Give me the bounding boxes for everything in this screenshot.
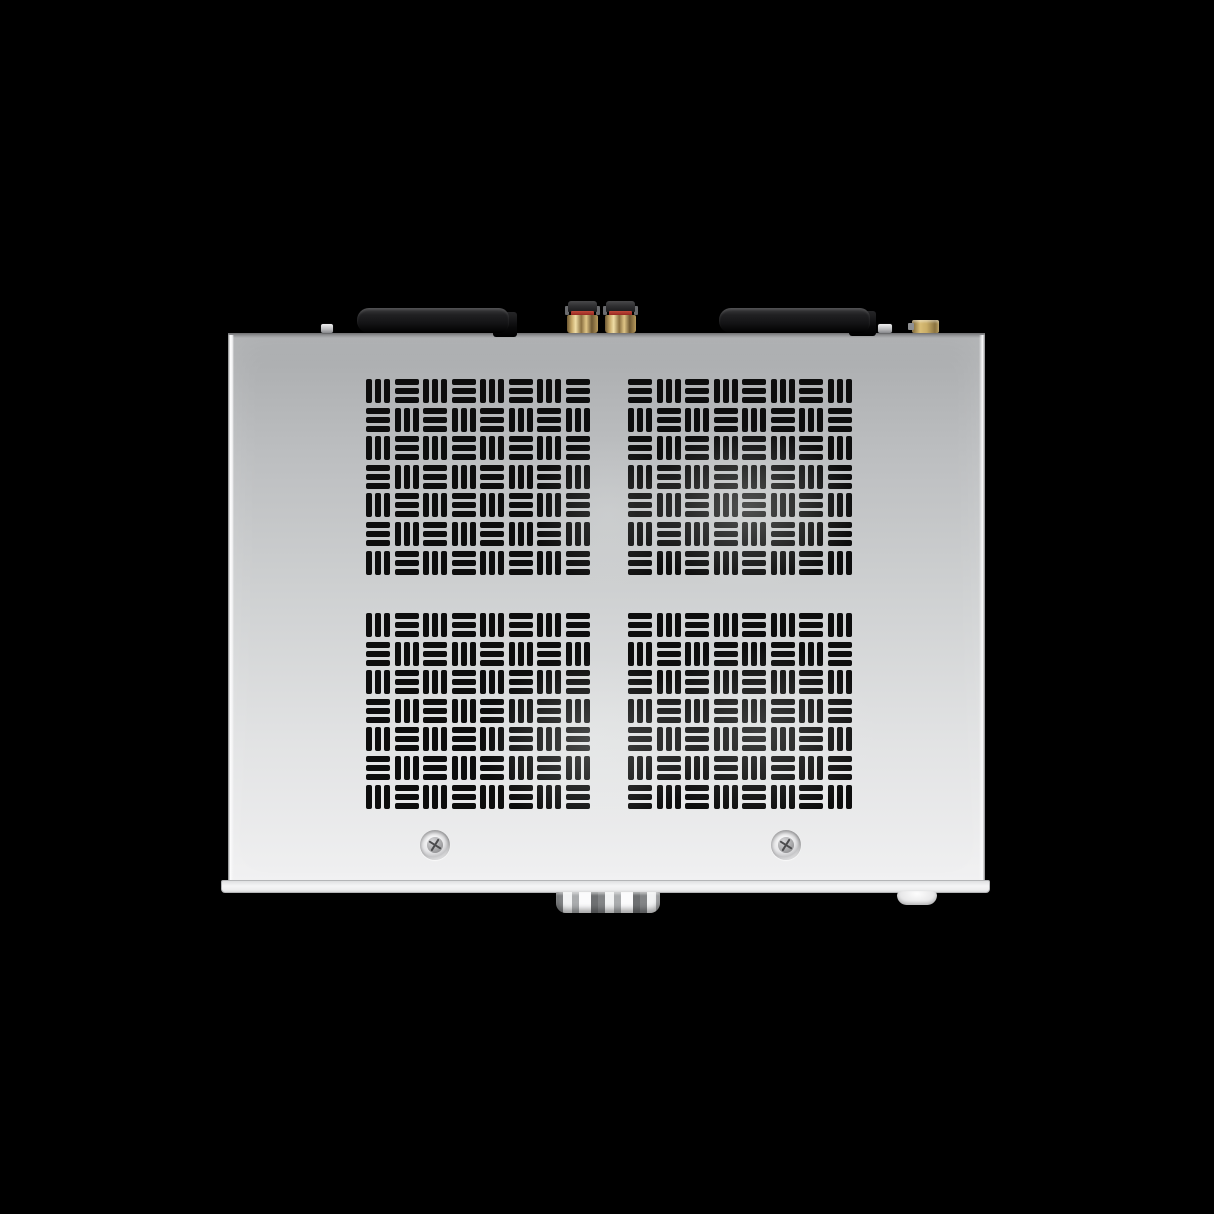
vent-slot	[452, 699, 458, 723]
vent-slot	[452, 569, 476, 575]
vent-cell	[423, 756, 447, 780]
vent-slot	[657, 642, 681, 648]
vent-cell	[742, 551, 766, 575]
vent-slot	[628, 736, 652, 742]
vent-cell	[742, 493, 766, 517]
vent-slot	[566, 454, 590, 460]
vent-slot	[714, 551, 720, 575]
vent-slot	[395, 454, 419, 460]
vent-cell	[828, 379, 852, 403]
vent-slot	[714, 540, 738, 546]
vent-slot	[628, 522, 634, 546]
vent-slot	[470, 522, 476, 546]
vent-cell	[628, 785, 652, 809]
vent-slot	[771, 756, 795, 762]
vent-slot	[423, 785, 429, 809]
vent-slot	[799, 736, 823, 742]
vent-cell	[566, 613, 590, 637]
vent-slot	[828, 670, 834, 694]
vent-slot	[685, 622, 709, 628]
vent-slot	[480, 483, 504, 489]
vent-slot	[780, 613, 786, 637]
vent-cell	[742, 613, 766, 637]
vent-slot	[413, 756, 419, 780]
vent-slot	[537, 436, 543, 460]
vent-slot	[423, 408, 447, 414]
vent-slot	[366, 774, 390, 780]
vent-cell	[423, 493, 447, 517]
vent-slot	[404, 408, 410, 432]
vent-slot	[714, 493, 720, 517]
amplifier-chassis-top	[228, 333, 985, 881]
vent-slot	[452, 436, 476, 442]
vent-slot	[666, 379, 672, 403]
vent-slot	[470, 408, 476, 432]
vent-slot	[789, 551, 795, 575]
vent-cell	[714, 379, 738, 403]
vent-slot	[366, 465, 390, 471]
vent-slot	[489, 436, 495, 460]
vent-slot	[723, 493, 729, 517]
vent-slot	[714, 474, 738, 480]
vent-slot	[498, 493, 504, 517]
vent-slot	[566, 465, 572, 489]
vent-slot	[828, 756, 852, 762]
vent-cell	[537, 379, 561, 403]
vent-slot	[470, 756, 476, 780]
vent-slot	[366, 660, 390, 666]
vent-slot	[675, 436, 681, 460]
vent-slot	[518, 756, 524, 780]
vent-slot	[780, 379, 786, 403]
vent-slot	[657, 483, 681, 489]
vent-slot	[555, 670, 561, 694]
vent-cell	[657, 408, 681, 432]
vent-slot	[828, 660, 852, 666]
vent-slot	[685, 670, 709, 676]
vent-slot	[675, 727, 681, 751]
vent-cell	[685, 465, 709, 489]
vent-cell	[685, 379, 709, 403]
vent-cell	[395, 551, 419, 575]
vent-slot	[480, 727, 486, 751]
vent-slot	[751, 465, 757, 489]
vent-slot	[789, 436, 795, 460]
vent-slot	[657, 551, 663, 575]
vent-cell	[509, 493, 533, 517]
vent-slot	[566, 794, 590, 800]
vent-slot	[375, 551, 381, 575]
vent-slot	[789, 379, 795, 403]
vent-slot	[432, 613, 438, 637]
vent-slot	[452, 622, 476, 628]
vent-slot	[742, 803, 766, 809]
vent-cell	[537, 436, 561, 460]
vent-cell	[685, 727, 709, 751]
vent-slot	[685, 745, 709, 751]
vent-slot	[537, 483, 561, 489]
vent-cell	[714, 522, 738, 546]
vent-slot	[480, 474, 504, 480]
vent-slot	[628, 511, 652, 517]
vent-slot	[509, 756, 515, 780]
vent-cell	[366, 785, 390, 809]
vent-slot	[395, 699, 401, 723]
vent-cell	[828, 522, 852, 546]
vent-slot	[799, 688, 823, 694]
vent-grille-top-right	[628, 379, 852, 575]
vent-slot	[657, 417, 681, 423]
vent-slot	[742, 397, 766, 403]
vent-cell	[799, 465, 823, 489]
vent-slot	[546, 670, 552, 694]
vent-slot	[628, 397, 652, 403]
vent-slot	[384, 785, 390, 809]
vent-slot	[489, 613, 495, 637]
vent-slot	[423, 540, 447, 546]
vent-slot	[452, 803, 476, 809]
vent-slot	[395, 794, 419, 800]
vent-slot	[628, 388, 652, 394]
vent-slot	[846, 379, 852, 403]
vent-slot	[828, 651, 852, 657]
vent-slot	[703, 465, 709, 489]
vent-slot	[771, 765, 795, 771]
vent-slot	[628, 631, 652, 637]
vent-slot	[546, 727, 552, 751]
vent-slot	[628, 551, 652, 557]
vent-cell	[480, 493, 504, 517]
vent-slot	[584, 408, 590, 432]
vent-slot	[498, 613, 504, 637]
vent-slot	[470, 642, 476, 666]
vent-slot	[395, 613, 419, 619]
vent-slot	[432, 670, 438, 694]
vent-slot	[480, 756, 504, 762]
rca-gold-barrel	[567, 315, 598, 333]
vent-slot	[423, 670, 429, 694]
vent-cell	[714, 551, 738, 575]
vent-slot	[566, 560, 590, 566]
vent-slot	[518, 522, 524, 546]
vent-slot	[566, 699, 572, 723]
vent-slot	[566, 670, 590, 676]
vent-slot	[657, 613, 663, 637]
vent-slot	[771, 408, 795, 414]
vent-slot	[366, 426, 390, 432]
vent-slot	[375, 493, 381, 517]
vent-slot	[566, 756, 572, 780]
vent-slot	[395, 679, 419, 685]
vent-slot	[637, 408, 643, 432]
vent-cell	[828, 436, 852, 460]
vent-slot	[498, 727, 504, 751]
vent-slot	[480, 493, 486, 517]
vent-slot	[413, 522, 419, 546]
vent-slot	[423, 483, 447, 489]
vent-slot	[509, 803, 533, 809]
vent-cell	[366, 379, 390, 403]
vent-slot	[799, 642, 805, 666]
vent-slot	[366, 474, 390, 480]
vent-slot	[441, 613, 447, 637]
vent-cell	[395, 493, 419, 517]
vent-slot	[452, 688, 476, 694]
vent-slot	[575, 699, 581, 723]
vent-cell	[395, 670, 419, 694]
vent-slot	[637, 756, 643, 780]
vent-cell	[480, 465, 504, 489]
vent-slot	[423, 474, 447, 480]
vent-slot	[509, 622, 533, 628]
vent-slot	[375, 785, 381, 809]
vent-slot	[828, 436, 834, 460]
vent-slot	[480, 708, 504, 714]
vent-cell	[771, 379, 795, 403]
vent-slot	[837, 727, 843, 751]
vent-slot	[799, 408, 805, 432]
vent-slot	[657, 540, 681, 546]
vent-slot	[685, 569, 709, 575]
vent-slot	[537, 651, 561, 657]
vent-slot	[584, 756, 590, 780]
vent-slot	[566, 408, 572, 432]
vent-slot	[799, 613, 823, 619]
vent-slot	[375, 613, 381, 637]
vent-slot	[366, 670, 372, 694]
vent-slot	[675, 613, 681, 637]
vent-slot	[461, 642, 467, 666]
vent-slot	[714, 642, 738, 648]
vent-cell	[771, 613, 795, 637]
vent-cell	[771, 408, 795, 432]
vent-grille-bottom-left	[366, 613, 590, 809]
vent-cell	[714, 465, 738, 489]
vent-slot	[584, 465, 590, 489]
vent-cell	[828, 465, 852, 489]
vent-cell	[657, 613, 681, 637]
vent-slot	[685, 688, 709, 694]
vent-cell	[828, 493, 852, 517]
vent-slot	[537, 408, 561, 414]
vent-slot	[771, 436, 777, 460]
vent-slot	[537, 727, 543, 751]
vent-slot	[452, 408, 458, 432]
vent-slot	[452, 502, 476, 508]
vent-cell	[566, 551, 590, 575]
vent-slot	[657, 660, 681, 666]
vent-slot	[452, 551, 476, 557]
vent-slot	[817, 465, 823, 489]
vent-slot	[628, 688, 652, 694]
sma-antenna-connector	[912, 320, 939, 333]
vent-slot	[732, 379, 738, 403]
vent-cell	[452, 785, 476, 809]
vent-slot	[685, 511, 709, 517]
vent-slot	[566, 551, 590, 557]
vent-cell	[657, 551, 681, 575]
vent-slot	[509, 642, 515, 666]
vent-slot	[537, 551, 543, 575]
vent-slot	[780, 670, 786, 694]
vent-slot	[714, 408, 738, 414]
vent-slot	[817, 522, 823, 546]
vent-cell	[509, 727, 533, 751]
vent-cell	[628, 379, 652, 403]
vent-slot	[675, 551, 681, 575]
vent-cell	[771, 670, 795, 694]
vent-slot	[537, 785, 543, 809]
vent-cell	[423, 727, 447, 751]
vent-slot	[657, 727, 663, 751]
vent-slot	[555, 613, 561, 637]
vent-slot	[584, 642, 590, 666]
vent-slot	[489, 551, 495, 575]
vent-slot	[799, 631, 823, 637]
vent-slot	[628, 803, 652, 809]
vent-slot	[395, 736, 419, 742]
vent-cell	[423, 670, 447, 694]
vent-slot	[771, 660, 795, 666]
vent-slot	[566, 679, 590, 685]
vent-slot	[461, 699, 467, 723]
vent-slot	[685, 408, 691, 432]
vent-slot	[817, 642, 823, 666]
vent-slot	[384, 436, 390, 460]
vent-slot	[685, 560, 709, 566]
vent-slot	[828, 699, 852, 705]
vent-slot	[366, 642, 390, 648]
vent-slot	[546, 493, 552, 517]
vent-slot	[498, 436, 504, 460]
vent-slot	[685, 785, 709, 791]
chassis-right-edge	[979, 335, 985, 881]
vent-slot	[799, 679, 823, 685]
vent-slot	[537, 642, 561, 648]
vent-slot	[846, 493, 852, 517]
vent-cell	[628, 727, 652, 751]
vent-slot	[771, 483, 795, 489]
vent-slot	[742, 454, 766, 460]
vent-slot	[828, 540, 852, 546]
vent-slot	[537, 417, 561, 423]
vent-slot	[395, 493, 419, 499]
vent-cell	[566, 699, 590, 723]
vent-slot	[395, 631, 419, 637]
vent-slot	[780, 436, 786, 460]
vent-slot	[685, 727, 709, 733]
vent-cell	[452, 465, 476, 489]
vent-cell	[771, 493, 795, 517]
vent-slot	[509, 465, 515, 489]
vent-slot	[395, 745, 419, 751]
rca-gold-barrel	[605, 315, 636, 333]
vent-slot	[509, 379, 533, 385]
vent-slot	[628, 699, 634, 723]
vent-slot	[441, 379, 447, 403]
vent-slot	[646, 522, 652, 546]
vent-slot	[714, 531, 738, 537]
vent-slot	[537, 426, 561, 432]
vent-cell	[452, 493, 476, 517]
vent-cell	[423, 522, 447, 546]
vent-slot	[685, 522, 691, 546]
vent-cell	[657, 756, 681, 780]
vent-slot	[423, 493, 429, 517]
vent-slot	[771, 717, 795, 723]
vent-slot	[566, 736, 590, 742]
vent-slot	[723, 727, 729, 751]
edge-screw-left	[321, 324, 333, 333]
vent-slot	[666, 493, 672, 517]
vent-slot	[480, 531, 504, 537]
vent-cell	[366, 642, 390, 666]
vent-slot	[657, 717, 681, 723]
vent-slot	[685, 679, 709, 685]
vent-slot	[799, 454, 823, 460]
vent-slot	[432, 493, 438, 517]
vent-slot	[685, 699, 691, 723]
vent-slot	[742, 436, 766, 442]
vent-slot	[509, 493, 533, 499]
vent-cell	[799, 493, 823, 517]
vent-cell	[714, 493, 738, 517]
vent-slot	[366, 379, 372, 403]
vent-slot	[742, 736, 766, 742]
vent-cell	[423, 699, 447, 723]
vent-slot	[637, 465, 643, 489]
vent-slot	[537, 708, 561, 714]
vent-slot	[537, 660, 561, 666]
vent-slot	[751, 522, 757, 546]
vent-slot	[771, 708, 795, 714]
vent-cell	[366, 493, 390, 517]
vent-slot	[666, 785, 672, 809]
vent-slot	[628, 465, 634, 489]
vent-cell	[566, 727, 590, 751]
vent-slot	[509, 631, 533, 637]
vent-slot	[452, 388, 476, 394]
vent-slot	[771, 651, 795, 657]
vent-slot	[685, 397, 709, 403]
vent-slot	[694, 699, 700, 723]
vent-slot	[771, 613, 777, 637]
vent-cell	[771, 551, 795, 575]
vent-slot	[518, 465, 524, 489]
vent-slot	[452, 397, 476, 403]
vent-slot	[395, 445, 419, 451]
vent-slot	[566, 522, 572, 546]
vent-slot	[509, 397, 533, 403]
vent-slot	[413, 642, 419, 666]
vent-slot	[441, 436, 447, 460]
vent-slot	[452, 631, 476, 637]
vent-slot	[742, 679, 766, 685]
vent-slot	[846, 727, 852, 751]
vent-slot	[423, 551, 429, 575]
vent-slot	[395, 397, 419, 403]
vent-slot	[395, 379, 419, 385]
vent-slot	[742, 511, 766, 517]
vent-slot	[760, 756, 766, 780]
vent-slot	[657, 531, 681, 537]
vent-cell	[509, 785, 533, 809]
vent-slot	[537, 379, 543, 403]
vent-slot	[423, 765, 447, 771]
vent-cell	[566, 465, 590, 489]
vent-cell	[509, 465, 533, 489]
vent-slot	[732, 670, 738, 694]
